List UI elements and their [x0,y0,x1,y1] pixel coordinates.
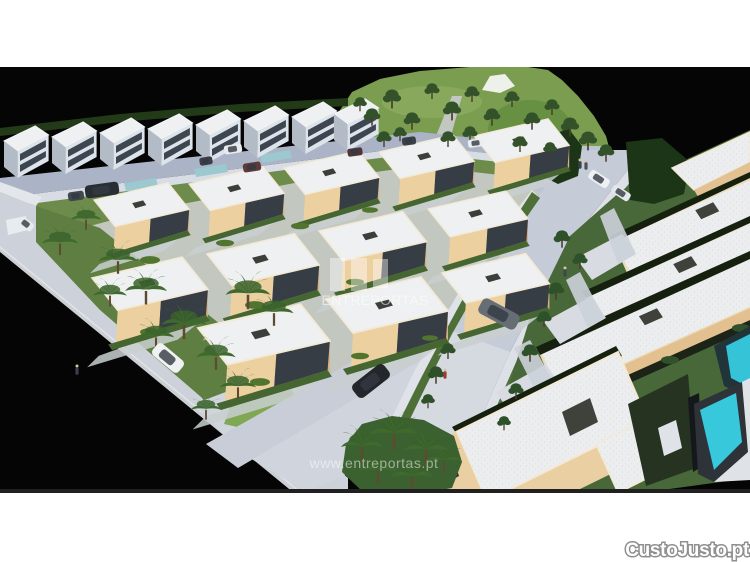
svg-text:CustoJusto.pt: CustoJusto.pt [625,540,750,561]
svg-text:www.entreportas.pt: www.entreportas.pt [309,455,439,471]
svg-text:ENTREPORTAS: ENTREPORTAS [321,292,428,308]
